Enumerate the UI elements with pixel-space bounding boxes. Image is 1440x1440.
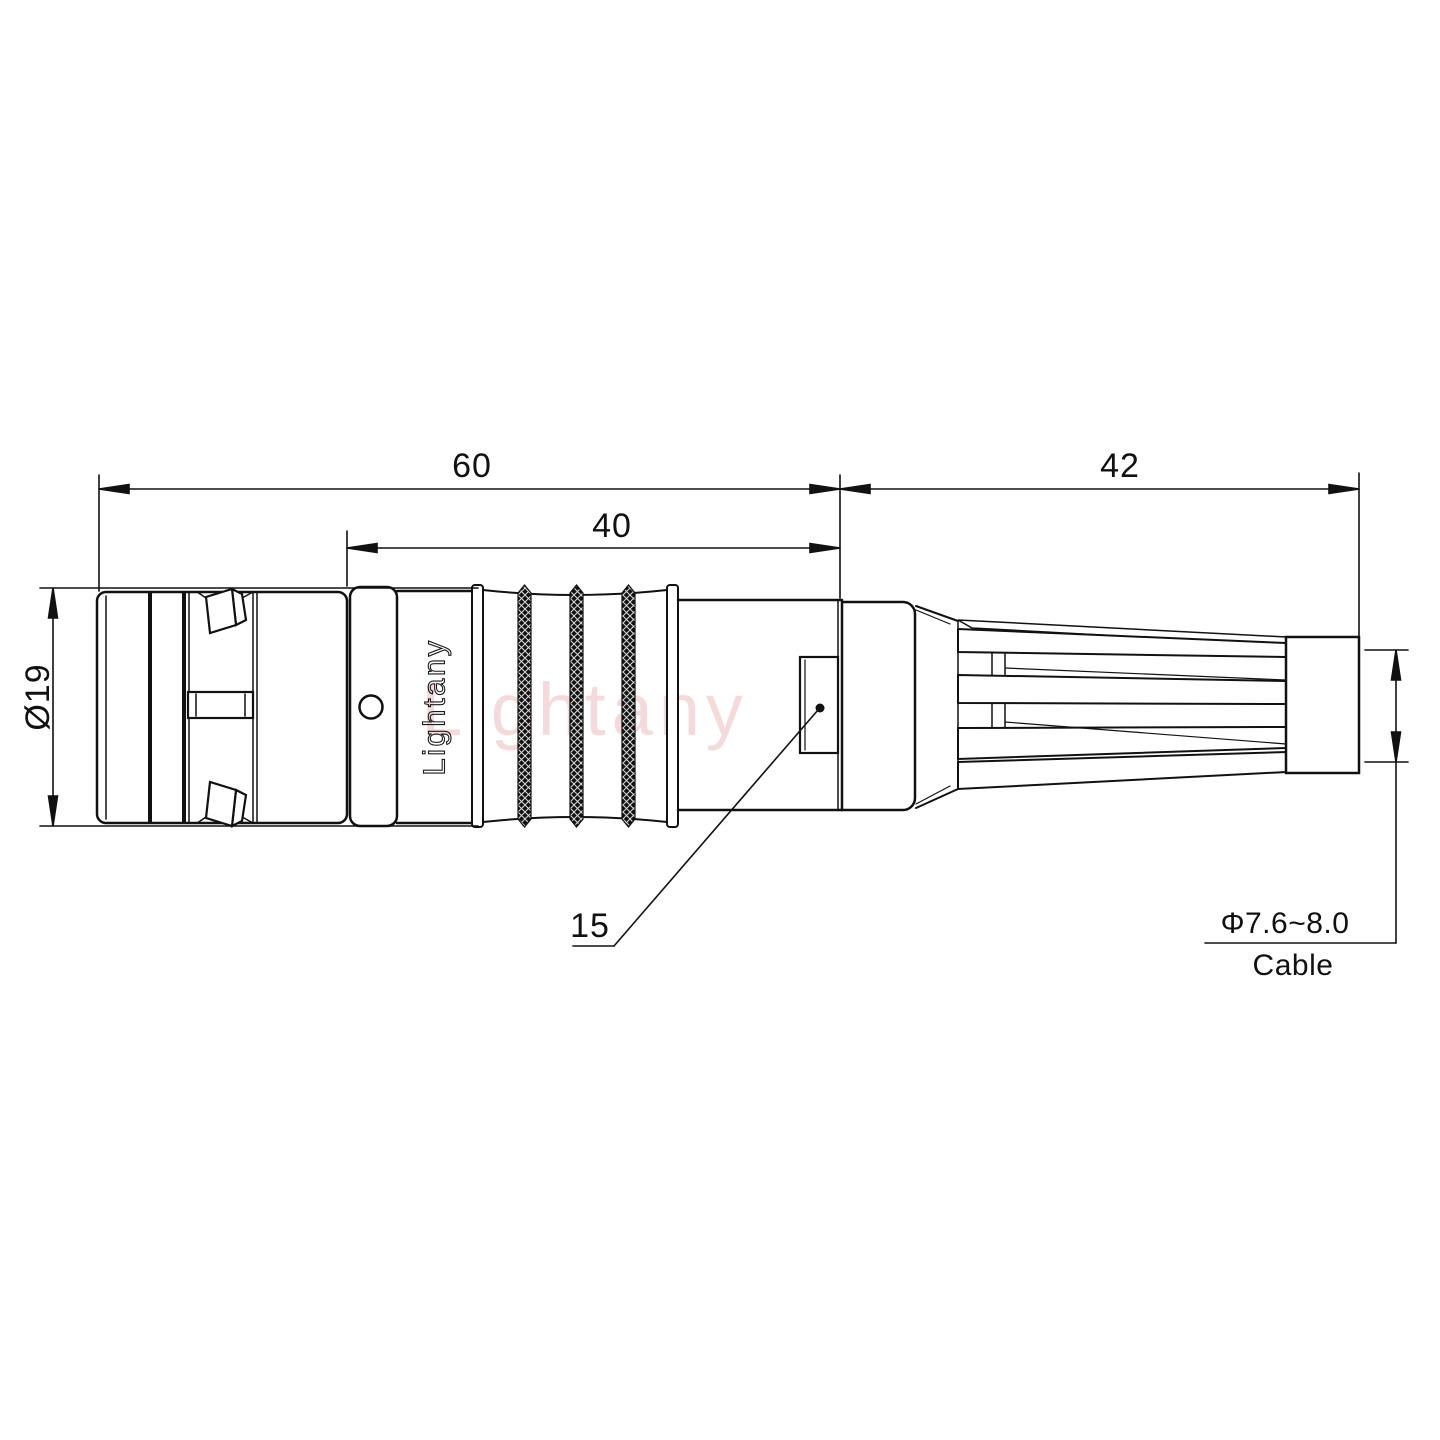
watermark-overlay-text: Lightany [421,668,749,751]
dimension-60-label: 60 [432,446,512,486]
knurl-strip [518,585,531,827]
dimension-40-label: 40 [572,506,652,546]
front-coupling-cap [97,589,347,826]
dimension-60-42 [99,485,1359,494]
collar-hole [360,696,383,719]
knurl-strip [622,585,635,827]
fin-2 [958,675,1286,704]
cable-diameter-label: Φ7.6~8.0 [1204,906,1366,942]
knurl-strip [570,585,583,827]
connector-drawing-svg: Lightany [0,0,1440,1440]
coupling-collar [350,587,397,826]
body-brand-text: Lightany [417,638,452,775]
cable-ferrule [1286,637,1359,773]
strain-relief-backshell [842,602,1286,810]
key-slot-window [188,692,253,718]
dimension-dia19-label: Ø19 [18,627,58,767]
dimension-15-label: 15 [550,906,630,946]
cable-word-label: Cable [1204,948,1382,984]
dimension-42-label: 42 [1080,446,1160,486]
technical-drawing-canvas: Lightany [0,0,1440,1440]
